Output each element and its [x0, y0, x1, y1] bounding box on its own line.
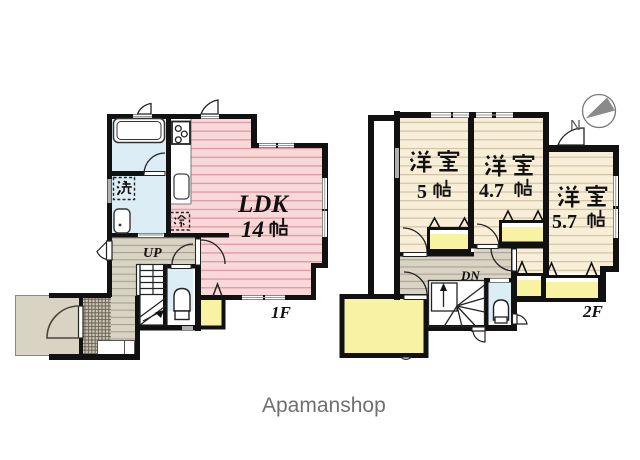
svg-text:DN: DN [460, 268, 480, 283]
svg-text:5: 5 [417, 181, 427, 203]
svg-text:Apamanshop: Apamanshop [262, 394, 386, 417]
svg-text:5.7: 5.7 [552, 211, 577, 233]
svg-text:UP: UP [143, 246, 162, 261]
svg-text:1F: 1F [271, 303, 292, 322]
svg-text:LDK: LDK [237, 191, 290, 218]
svg-text:14: 14 [241, 217, 264, 242]
svg-text:N: N [570, 117, 581, 134]
svg-text:4.7: 4.7 [479, 180, 504, 202]
svg-text:2F: 2F [582, 302, 604, 321]
